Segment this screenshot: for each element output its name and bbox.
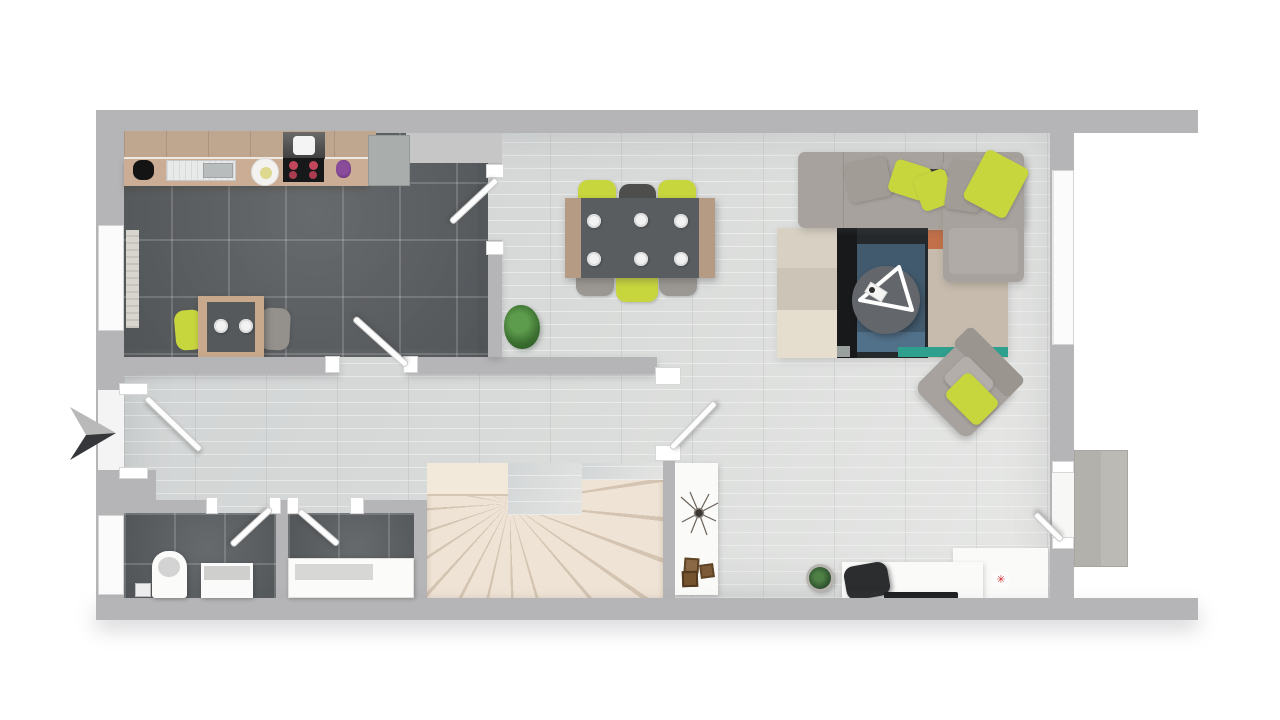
kitchen-sink [166, 160, 236, 181]
toilet-paper-stand [135, 583, 151, 597]
desk-plant-pot [806, 564, 834, 592]
sink-bowl [203, 163, 233, 178]
door-jamb [119, 383, 148, 395]
rug-gray-patch [837, 346, 850, 357]
wall-bottom [96, 598, 1198, 620]
counter-plant-purple [336, 160, 351, 178]
door-jamb [486, 164, 504, 178]
bowl-contents [260, 167, 272, 179]
desk-gadget: ✳ [993, 572, 1009, 588]
door-jamb [655, 367, 681, 385]
dining-table [565, 198, 715, 278]
mixing-bowl [251, 158, 279, 186]
hood-filter [293, 136, 315, 155]
coffee-table-triangle-decor [853, 258, 917, 320]
wall-bath-stairs [414, 500, 427, 598]
wall-stair-console [663, 458, 675, 598]
extractor-hood [283, 132, 325, 159]
decor-box [699, 563, 715, 579]
toilet-bowl [158, 557, 180, 577]
bathtub-basin [295, 564, 373, 580]
wc-window [98, 515, 124, 595]
living-room-window [1052, 170, 1074, 345]
bathroom-vanity [201, 563, 253, 598]
vanity-basin [204, 566, 250, 580]
terrace-pad [1074, 450, 1128, 567]
wall-wc-bath-divider [276, 513, 288, 598]
sofa-seam [843, 152, 844, 228]
burner [309, 161, 318, 170]
plate [214, 319, 228, 333]
burner [309, 171, 317, 179]
dining-plant [504, 305, 540, 349]
rug-beige-band [777, 228, 837, 268]
kitchen-window [98, 225, 124, 331]
plate [587, 214, 601, 228]
coffee-table-cup [869, 287, 875, 293]
kitchen-counter [124, 159, 368, 186]
door-jamb [325, 356, 340, 373]
dining-table-top [581, 198, 699, 278]
plate [587, 252, 601, 266]
entrance-arrow-icon [68, 404, 118, 462]
kitchen-upper-cabinets [124, 131, 376, 159]
wall-kitchen-hall-a [124, 357, 339, 374]
door-jamb [206, 497, 218, 514]
kitchen-radiator [126, 230, 139, 328]
door-jamb [655, 445, 681, 461]
rug-beige-band [777, 310, 837, 358]
kitchen-table [198, 296, 264, 358]
wall-kitchen-dining [488, 240, 502, 357]
sofa-chaise-cushion [949, 228, 1018, 274]
refrigerator [368, 135, 410, 186]
plate [674, 252, 688, 266]
branch-decor [678, 490, 722, 540]
toilet [152, 551, 187, 598]
door-jamb [486, 241, 504, 255]
kitchen-tall-cabinet [406, 133, 502, 163]
rug-beige-band [777, 268, 837, 310]
plate [674, 214, 688, 228]
staircase-landing [427, 463, 508, 496]
wall-kitchen-hall-b [406, 357, 657, 374]
burner [289, 161, 298, 170]
coffee-machine [133, 160, 154, 180]
burner [289, 171, 297, 179]
rug-orange-patch [928, 230, 943, 249]
plate [634, 252, 648, 266]
stair-notch-floor [508, 463, 582, 515]
door-jamb [119, 467, 148, 479]
plate [634, 213, 648, 227]
door-jamb [350, 497, 364, 514]
stair-top-floor-strip [582, 463, 663, 480]
floor-plan-canvas: ✳ [0, 0, 1280, 720]
door-jamb [1052, 461, 1074, 473]
wall-top [96, 110, 1198, 133]
bathtub [288, 558, 414, 598]
cooktop [283, 158, 324, 182]
decor-box [682, 571, 699, 588]
desk-plant [809, 567, 831, 589]
plate [239, 319, 253, 333]
desk-gadget-icon: ✳ [996, 573, 1005, 586]
